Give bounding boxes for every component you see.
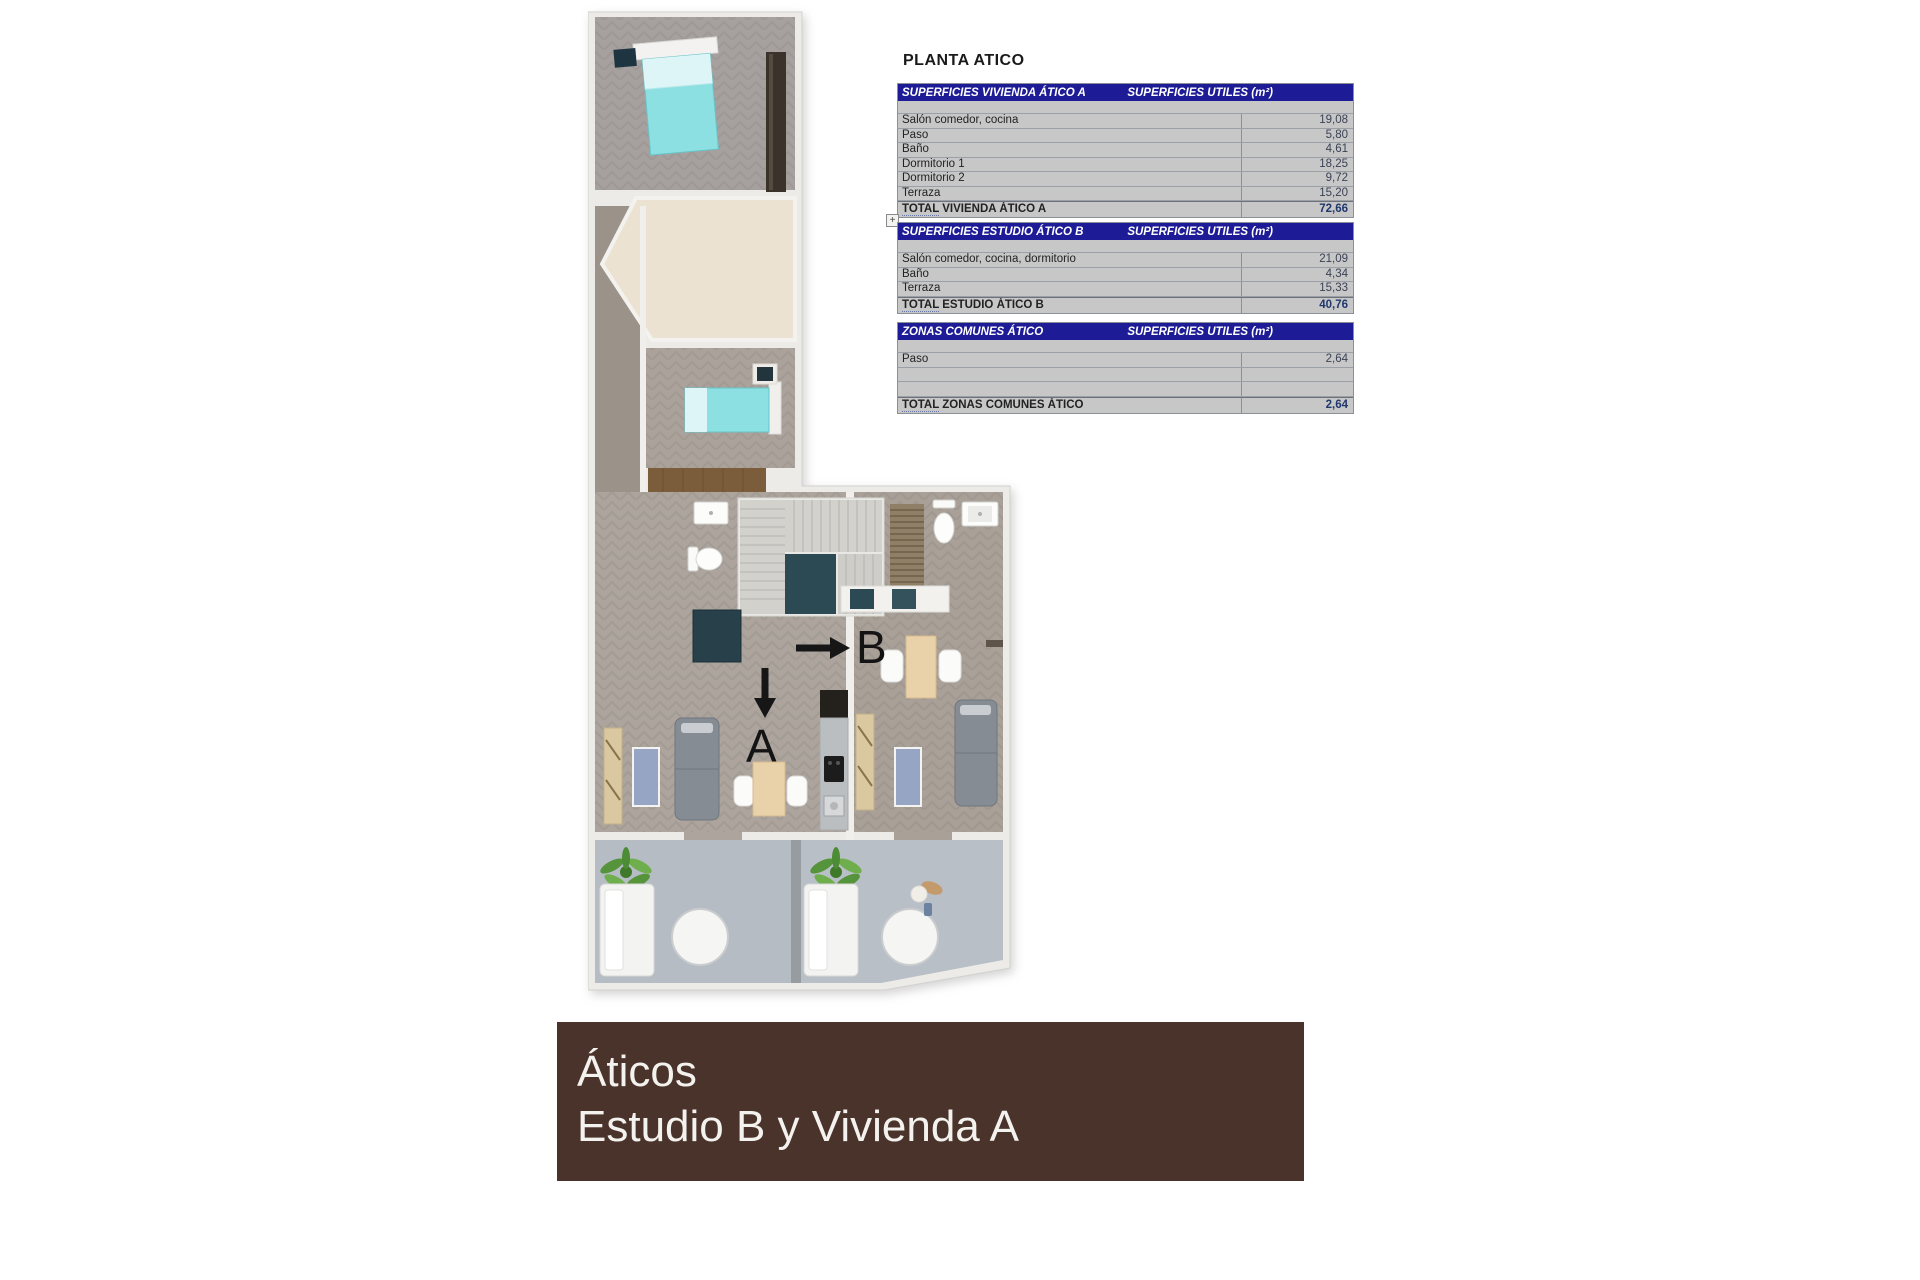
table-row: Dormitorio 118,25 [898, 158, 1353, 173]
sunbed-b [804, 884, 858, 976]
total-value: 2,64 [1241, 398, 1353, 413]
row-value: 21,09 [1241, 253, 1353, 267]
table-header: ZONAS COMUNES ÁTICO SUPERFICIES UTILES (… [898, 323, 1353, 340]
row-value: 18,25 [1241, 158, 1353, 172]
table-row: Salón comedor, cocina, dormitorio21,09 [898, 253, 1353, 268]
page: B A [0, 0, 1920, 1280]
table-row: Dormitorio 29,72 [898, 172, 1353, 187]
row-value [1241, 368, 1353, 382]
row-label: Baño [898, 143, 1241, 157]
table-row: Paso2,64 [898, 353, 1353, 368]
sunbed-a [600, 884, 654, 976]
row-value: 4,61 [1241, 143, 1353, 157]
table-total-row: TOTAL VIVIENDA ÁTICO A72,66 [898, 201, 1353, 217]
page-title: PLANTA ATICO [903, 52, 1025, 70]
row-label [898, 382, 1241, 396]
total-label: TOTAL VIVIENDA ÁTICO A [898, 202, 1241, 217]
banner-line-2: Estudio B y Vivienda A [577, 1099, 1304, 1154]
title-banner: Áticos Estudio B y Vivienda A [557, 1022, 1304, 1181]
nightstand [753, 364, 777, 384]
banner-line-1: Áticos [577, 1044, 1304, 1099]
row-label: Salón comedor, cocina, dormitorio [898, 253, 1241, 267]
wardrobe-dark-icon [766, 52, 786, 192]
table-row: Salón comedor, cocina19,08 [898, 114, 1353, 129]
rug-b [895, 748, 921, 806]
row-value: 15,33 [1241, 282, 1353, 296]
total-value: 40,76 [1241, 298, 1353, 313]
row-value: 4,34 [1241, 268, 1353, 282]
row-value: 9,72 [1241, 172, 1353, 186]
spacer-row [898, 240, 1353, 253]
row-label: Dormitorio 1 [898, 158, 1241, 172]
table-row [898, 368, 1353, 383]
round-table-b [882, 909, 938, 965]
row-label: Dormitorio 2 [898, 172, 1241, 186]
row-label: Paso [898, 353, 1241, 367]
row-value [1241, 382, 1353, 396]
table-row: Terraza15,33 [898, 282, 1353, 297]
table-header: SUPERFICIES ESTUDIO ÁTICO B SUPERFICIES … [898, 223, 1353, 240]
row-label: Terraza [898, 187, 1241, 201]
round-table-a [672, 909, 728, 965]
wardrobe-brown-icon [648, 468, 766, 492]
row-value: 2,64 [1241, 353, 1353, 367]
table-row: Baño4,61 [898, 143, 1353, 158]
spacer-row [898, 340, 1353, 353]
total-label: TOTAL ZONAS COMUNES ÁTICO [898, 398, 1241, 413]
wardrobe-a [604, 728, 622, 824]
sofa-b [955, 700, 997, 806]
table-row: Paso5,80 [898, 129, 1353, 144]
unit-b-label: B [856, 621, 887, 673]
table-superficies-vivienda-atico-a: SUPERFICIES VIVIENDA ÁTICO A SUPERFICIES… [897, 83, 1354, 218]
closet-shelf [841, 586, 949, 612]
wardrobe-b [856, 714, 874, 810]
total-label: TOTAL ESTUDIO ÁTICO B [898, 298, 1241, 313]
single-bed [685, 382, 781, 434]
row-value: 19,08 [1241, 114, 1353, 128]
table-zonas-comunes-atico: ZONAS COMUNES ÁTICO SUPERFICIES UTILES (… [897, 322, 1354, 414]
table-header-right: SUPERFICIES UTILES (m²) [1127, 87, 1353, 99]
row-label: Salón comedor, cocina [898, 114, 1241, 128]
table-row [898, 382, 1353, 397]
table-total-row: TOTAL ESTUDIO ÁTICO B40,76 [898, 297, 1353, 313]
row-label [898, 368, 1241, 382]
table-header-left: ZONAS COMUNES ÁTICO [902, 326, 1127, 338]
row-label: Terraza [898, 282, 1241, 296]
spacer-row [898, 101, 1353, 114]
total-value: 72,66 [1241, 202, 1353, 217]
row-label: Paso [898, 129, 1241, 143]
table-header: SUPERFICIES VIVIENDA ÁTICO A SUPERFICIES… [898, 84, 1353, 101]
table-row: Terraza15,20 [898, 187, 1353, 202]
table-header-left: SUPERFICIES ESTUDIO ÁTICO B [902, 226, 1127, 238]
table-row: Baño4,34 [898, 268, 1353, 283]
striped-rug [890, 504, 924, 588]
table-total-row: TOTAL ZONAS COMUNES ÁTICO2,64 [898, 397, 1353, 413]
table-superficies-estudio-atico-b: SUPERFICIES ESTUDIO ÁTICO B SUPERFICIES … [897, 222, 1354, 314]
rug-a [633, 748, 659, 806]
sofa-a [675, 718, 719, 820]
row-label: Baño [898, 268, 1241, 282]
table-header-left: SUPERFICIES VIVIENDA ÁTICO A [902, 87, 1127, 99]
kitchen-counter [820, 690, 848, 830]
row-value: 15,20 [1241, 187, 1353, 201]
wall-shelf [986, 640, 1003, 647]
table-header-right: SUPERFICIES UTILES (m²) [1127, 226, 1353, 238]
row-value: 5,80 [1241, 129, 1353, 143]
table-header-right: SUPERFICIES UTILES (m²) [1127, 326, 1353, 338]
